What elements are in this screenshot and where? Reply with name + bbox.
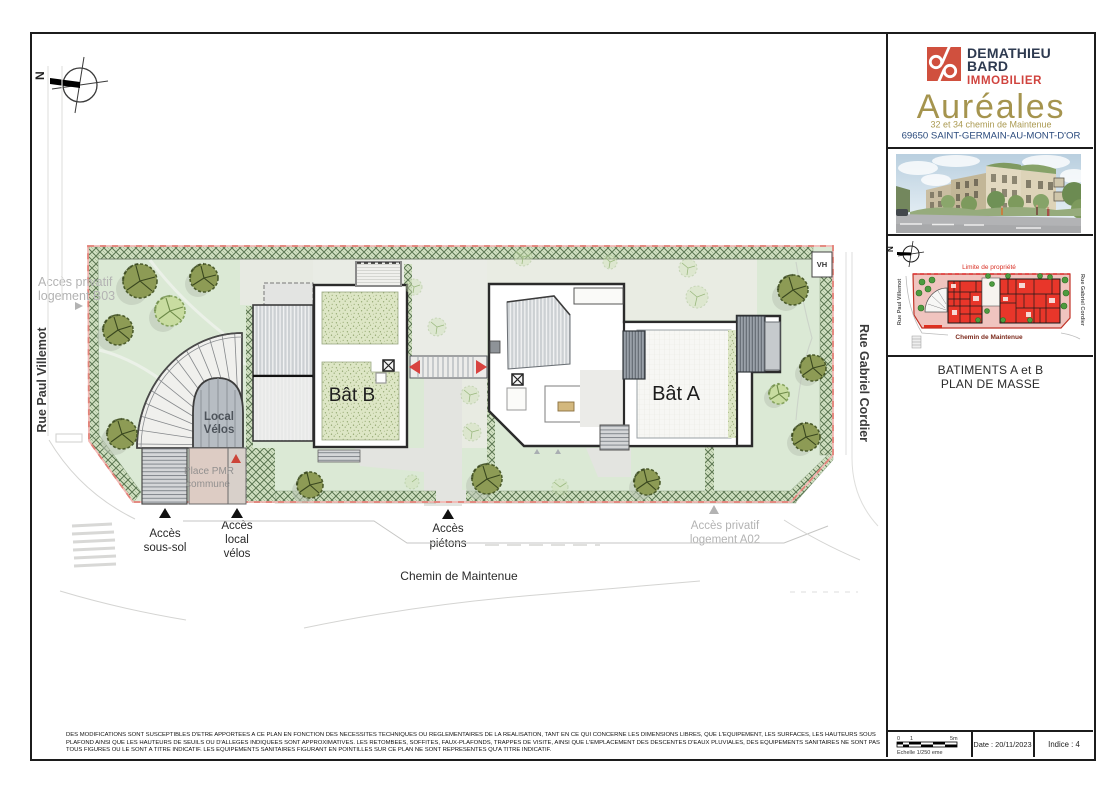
svg-text:Bât B: Bât B [329, 385, 375, 406]
svg-text:Bât A: Bât A [652, 383, 700, 405]
svg-text:sous-sol: sous-sol [144, 542, 187, 554]
svg-text:Place PMR: Place PMR [184, 466, 234, 477]
svg-text:Vélos: Vélos [204, 424, 235, 436]
svg-text:local: local [225, 534, 249, 546]
svg-text:Rue Gabriel Cordier: Rue Gabriel Cordier [857, 324, 871, 442]
svg-text:0: 0 [897, 736, 900, 742]
svg-text:VH: VH [817, 260, 827, 269]
svg-text:vélos: vélos [224, 548, 251, 560]
svg-text:piétons: piétons [429, 538, 466, 550]
svg-text:BARD: BARD [967, 58, 1008, 74]
svg-text:Accès: Accès [432, 523, 464, 535]
svg-text:Local: Local [204, 411, 234, 423]
svg-text:Accès privatif: Accès privatif [691, 520, 760, 532]
svg-text:IMMOBILIER: IMMOBILIER [967, 75, 1042, 87]
svg-text:N: N [888, 246, 895, 252]
svg-text:Limite de propriété: Limite de propriété [962, 264, 1016, 271]
svg-text:Accès: Accès [221, 520, 253, 532]
svg-text:Chemin de Maintenue: Chemin de Maintenue [955, 334, 1023, 341]
svg-text:Rue Paul Villemot: Rue Paul Villemot [897, 279, 903, 326]
svg-text:Accès: Accès [149, 528, 181, 540]
svg-text:Echelle 1/250 eme: Echelle 1/250 eme [897, 750, 943, 756]
svg-text:5m: 5m [950, 736, 958, 742]
svg-text:commune: commune [186, 479, 230, 490]
svg-text:Rue Paul Villemot: Rue Paul Villemot [35, 326, 49, 432]
svg-text:Rue Gabriel Cordier: Rue Gabriel Cordier [1079, 274, 1085, 327]
svg-text:1: 1 [910, 736, 913, 742]
svg-text:logement B03: logement B03 [38, 289, 115, 303]
svg-text:69650 SAINT-GERMAIN-AU-MONT-D': 69650 SAINT-GERMAIN-AU-MONT-D'OR [902, 131, 1081, 142]
svg-text:Chemin de Maintenue: Chemin de Maintenue [400, 569, 518, 583]
svg-text:logement A02: logement A02 [690, 534, 760, 546]
svg-text:N: N [33, 71, 47, 80]
svg-text:32 et 34 chemin de Maintenue: 32 et 34 chemin de Maintenue [930, 120, 1051, 130]
svg-text:Accès privatif: Accès privatif [38, 275, 113, 289]
